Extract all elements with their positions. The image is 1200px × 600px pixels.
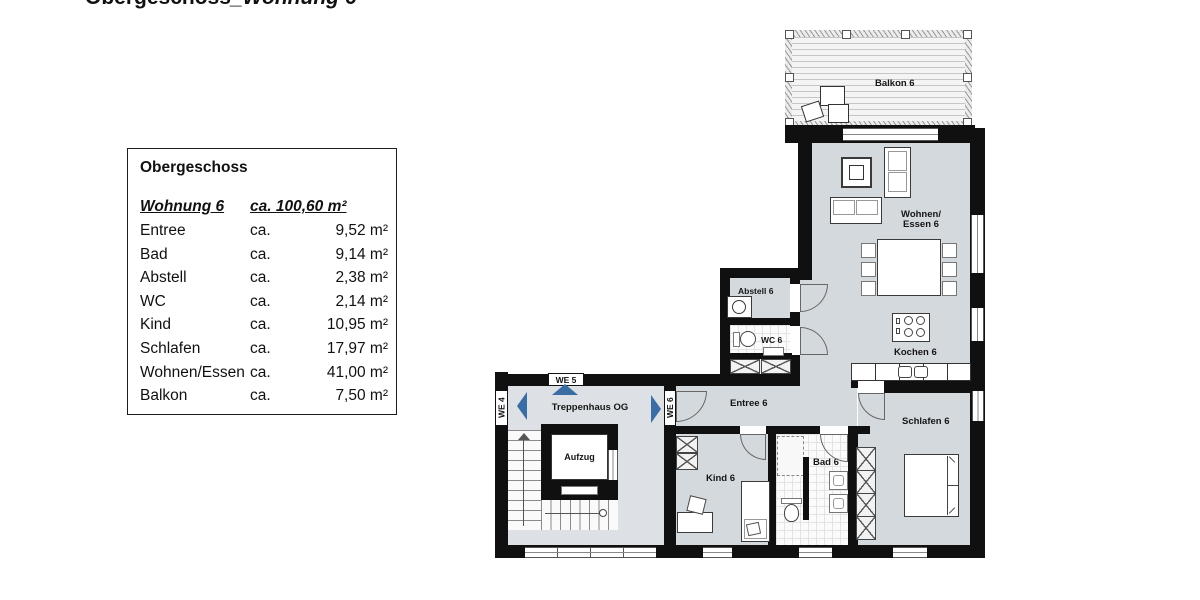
room-label-kochen: Kochen 6 <box>894 348 937 358</box>
wall <box>970 128 985 558</box>
sink-bad-basin <box>833 475 844 486</box>
railing-post <box>963 30 972 39</box>
dining-chair <box>861 281 876 296</box>
wall-picture-inner <box>849 165 864 180</box>
railing-post <box>785 73 794 82</box>
room-label-abstell: Abstell 6 <box>738 286 773 296</box>
window-schlafen-south <box>893 547 927 558</box>
kitchen-sink-basin <box>914 366 928 378</box>
burner <box>904 316 913 325</box>
arrow-right-we6-icon <box>651 395 661 423</box>
we6-text: WE 6 <box>665 398 675 419</box>
wall <box>798 128 812 280</box>
floorplan: Balkon 6 WE 5 <box>0 0 1200 600</box>
window-kochen <box>971 308 984 341</box>
sink-wc <box>763 347 784 356</box>
toilet-bowl-bad <box>784 504 799 522</box>
sofa-cushion <box>833 200 855 215</box>
burner <box>916 328 925 337</box>
wall <box>495 374 798 386</box>
room-label-entree: Entree 6 <box>730 399 768 409</box>
toilet-tank-wc <box>733 332 740 347</box>
stairs-left-flight <box>508 430 541 530</box>
stairs-rail-line <box>545 513 601 514</box>
wall <box>664 426 740 434</box>
kitchen-sink-basin <box>898 366 912 378</box>
wall <box>884 380 985 393</box>
sink-bad-basin <box>833 498 844 509</box>
window-wohnen <box>971 215 984 273</box>
window-kind <box>703 547 732 558</box>
desk-kind <box>677 512 713 533</box>
elevator-door <box>608 450 618 480</box>
balcony-chair <box>828 104 849 123</box>
railing-post <box>842 30 851 39</box>
wall <box>720 268 800 278</box>
room-label-wc: WC 6 <box>761 335 782 345</box>
dining-chair <box>861 243 876 258</box>
wardrobe-box <box>856 493 876 517</box>
burner <box>904 328 913 337</box>
unit-label-we4: WE 4 <box>495 390 508 426</box>
cooktop-control <box>896 328 900 334</box>
wall <box>790 276 800 284</box>
dining-table <box>877 239 941 296</box>
window-treppenhaus <box>525 547 656 558</box>
washing-machine-drum <box>732 300 746 314</box>
room-label-aufzug: Aufzug <box>551 452 608 462</box>
dining-chair <box>861 262 876 277</box>
closet-box <box>676 436 698 453</box>
room-label-wohnen: Wohnen/ Essen 6 <box>890 210 952 230</box>
burner <box>916 316 925 325</box>
shower <box>777 436 804 476</box>
window-balcony-door <box>843 128 938 141</box>
wohnen-line2: Essen 6 <box>890 220 952 230</box>
window-bad <box>799 547 832 558</box>
stairs-newel-post <box>599 509 607 517</box>
wardrobe-box <box>856 516 876 540</box>
wall <box>664 374 676 391</box>
wardrobe-box <box>856 447 876 471</box>
arrow-left-we4-icon <box>517 392 527 420</box>
sofa-cushion <box>856 200 878 215</box>
we4-text: WE 4 <box>497 398 507 419</box>
dining-chair <box>942 281 957 296</box>
bed-split-line <box>947 485 958 486</box>
floorplan-page: Obergeschoss_Wohnung 6 Obergeschoss Wohn… <box>0 0 1200 600</box>
armchair-cushion <box>888 172 907 192</box>
bad-partition-wall <box>803 457 809 520</box>
shaft-box <box>761 359 791 374</box>
toilet-bowl-wc <box>740 331 756 347</box>
dining-chair <box>942 262 957 277</box>
room-label-bad: Bad 6 <box>813 458 839 468</box>
unit-label-we6: WE 6 <box>664 390 676 426</box>
armchair-cushion <box>888 151 907 171</box>
window-schlafen-east <box>972 391 984 421</box>
shaft-box <box>730 359 760 374</box>
wardrobe-box <box>856 470 876 494</box>
room-label-balkon: Balkon 6 <box>875 79 915 89</box>
dining-chair <box>942 243 957 258</box>
balcony-table <box>820 86 845 106</box>
room-label-schlafen: Schlafen 6 <box>902 417 950 427</box>
stairs-up-arrow-icon <box>518 433 530 440</box>
wall <box>664 423 676 558</box>
room-label-treppenhaus: Treppenhaus OG <box>530 403 650 413</box>
railing-post <box>785 30 794 39</box>
cooktop-control <box>896 318 900 324</box>
closet-box <box>676 453 698 470</box>
wall <box>728 318 792 325</box>
room-label-kind: Kind 6 <box>706 474 735 484</box>
stairs-rail-line <box>523 438 524 526</box>
elevator-sill <box>561 486 598 495</box>
we5-text: WE 5 <box>556 375 577 385</box>
wall <box>720 268 730 386</box>
arrow-up-we5-icon <box>552 384 578 395</box>
railing-post <box>901 30 910 39</box>
railing-post <box>963 73 972 82</box>
